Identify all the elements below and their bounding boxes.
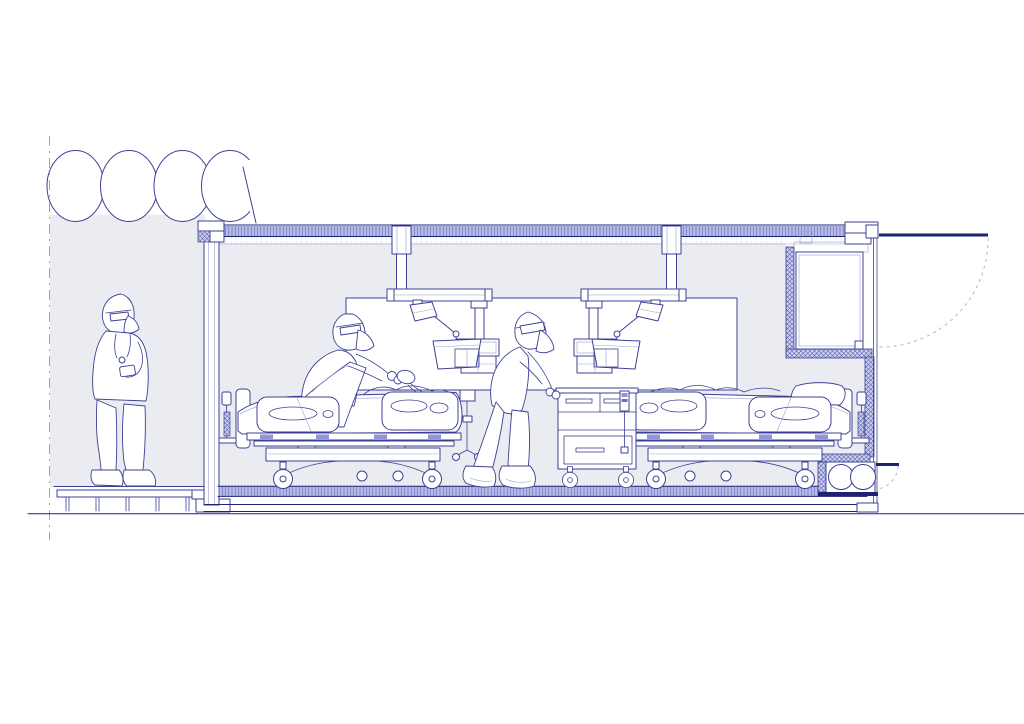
niche-wall-insulated bbox=[786, 247, 794, 357]
niche-sill-insulated bbox=[786, 349, 872, 358]
tent-lobe bbox=[47, 151, 104, 222]
boot bbox=[91, 470, 123, 486]
section-drawing bbox=[0, 0, 1024, 724]
leg bbox=[508, 410, 530, 470]
footing bbox=[857, 503, 878, 512]
left-wall bbox=[204, 240, 219, 505]
shoe-cover bbox=[499, 466, 535, 488]
door-swing-arc bbox=[876, 238, 988, 347]
coverall-torso bbox=[93, 331, 149, 401]
roof-lining bbox=[210, 237, 845, 244]
floor-insulation bbox=[218, 486, 867, 496]
left-corner-post bbox=[198, 221, 224, 231]
shoe-cover bbox=[463, 466, 496, 487]
tent-lobe bbox=[101, 151, 158, 222]
door-leaf-open bbox=[879, 234, 988, 237]
drawing-sheet bbox=[0, 0, 1024, 724]
gas-cylinder bbox=[851, 465, 876, 490]
leg bbox=[123, 404, 146, 470]
boot bbox=[123, 470, 156, 486]
hatch-lid bbox=[876, 463, 899, 466]
roof-insulation bbox=[210, 226, 845, 236]
utility-compartment bbox=[818, 454, 899, 512]
handheld-device bbox=[119, 365, 135, 377]
gas-cylinder bbox=[829, 465, 854, 490]
niche-box bbox=[796, 252, 863, 349]
